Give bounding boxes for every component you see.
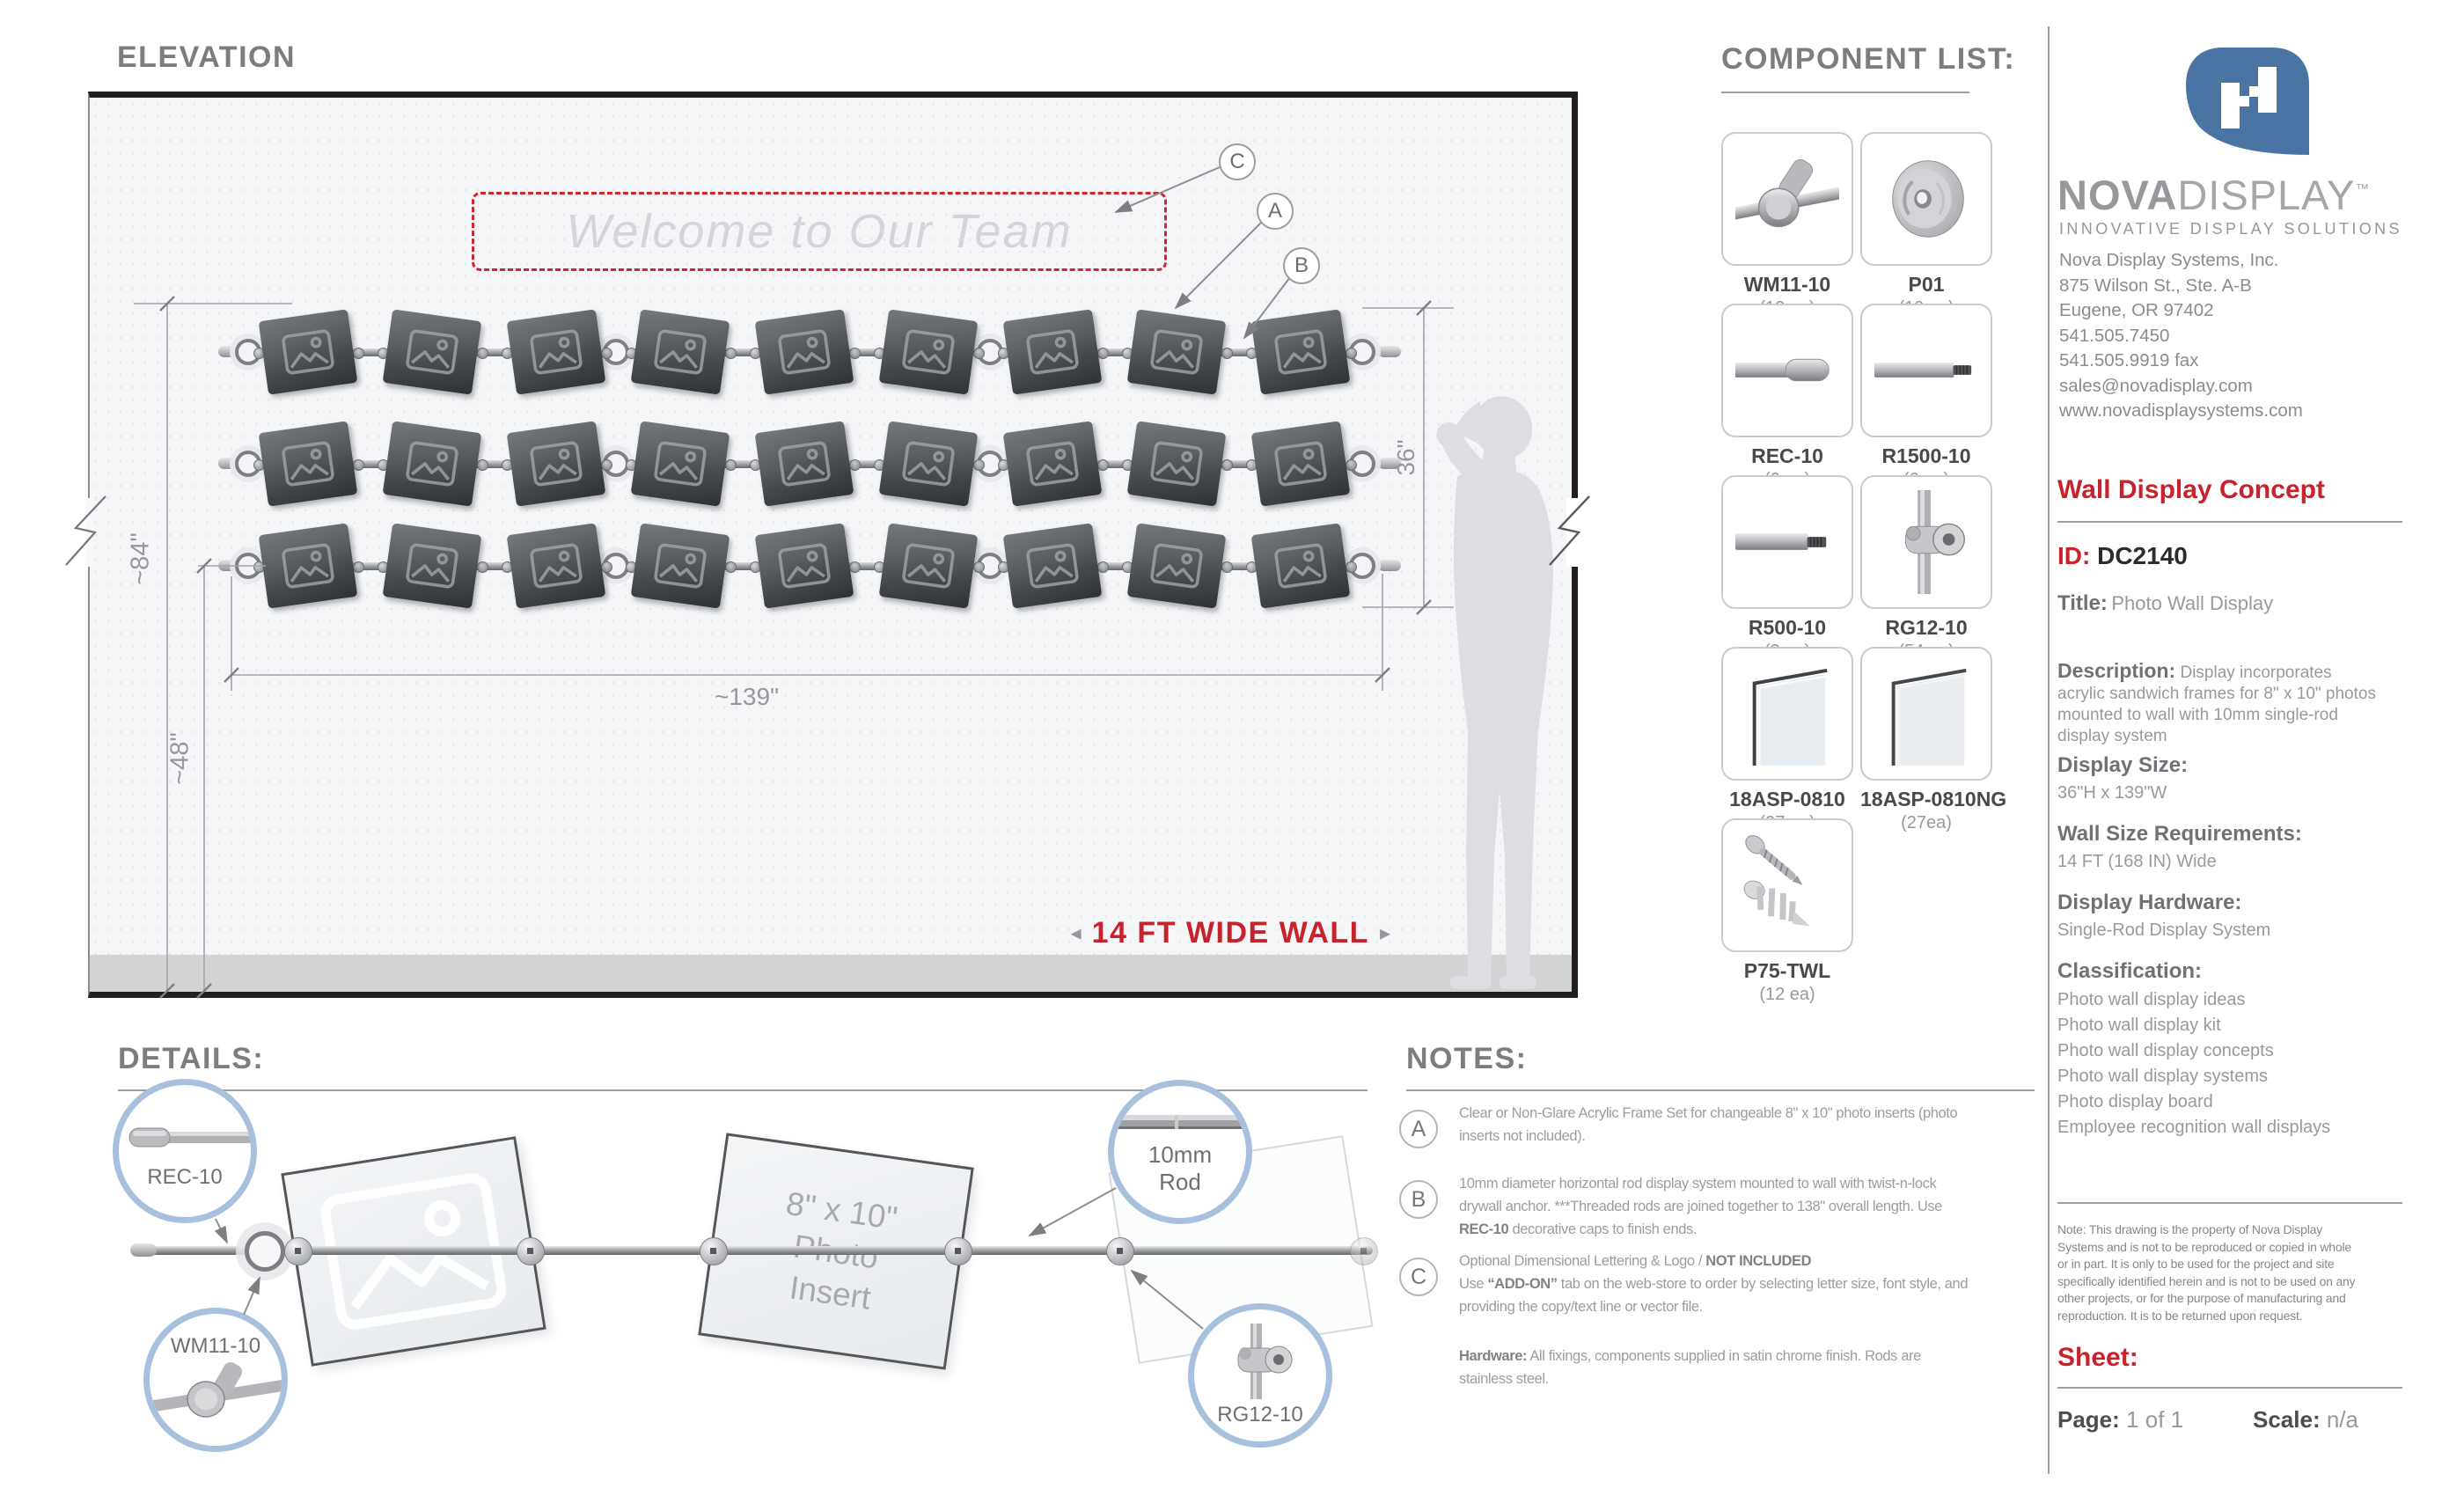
component-item: R1500-10(6 ea) xyxy=(1860,304,1992,490)
classification-item: Photo display board xyxy=(2057,1089,2330,1115)
note-text: Optional Dimensional Lettering & Logo / … xyxy=(1459,1250,2066,1318)
legal-divider xyxy=(2057,1202,2402,1204)
callout-rod-line2: Rod xyxy=(1159,1169,1201,1196)
callout-a-badge: A xyxy=(1257,193,1294,230)
page-row: Page: 1 of 1 xyxy=(2057,1406,2183,1434)
note-line: Clear or Non-Glare Acrylic Frame Set for… xyxy=(1459,1102,2066,1125)
hardware-value: Single-Rod Display System xyxy=(2057,920,2270,941)
page-value: 1 of 1 xyxy=(2126,1406,2183,1433)
classification-list: Photo wall display ideasPhoto wall displ… xyxy=(2057,987,2330,1140)
size-value: 36"H x 139"W xyxy=(2057,783,2167,803)
notes-title: NOTES: xyxy=(1406,1042,1527,1076)
hardware-note: Hardware: All fixings, components suppli… xyxy=(1459,1345,2022,1390)
acrylic-clear-icon xyxy=(1735,662,1839,766)
wall-size-label: Wall Size Requirements: xyxy=(2057,822,2302,847)
component-list-title: COMPONENT LIST: xyxy=(1721,42,2015,77)
callout-rg12-label: RG12-10 xyxy=(1217,1403,1302,1427)
end-cap-icon xyxy=(1735,319,1839,422)
address-line: 541.505.7450 xyxy=(2059,324,2404,349)
component-item: 18ASP-0810(27 ea) xyxy=(1721,647,1853,833)
note-line: stainless steel. xyxy=(1459,1368,2022,1390)
component-name: RG12-10 xyxy=(1860,616,1992,640)
component-thumb xyxy=(1860,475,1992,609)
dim-139: ~139" xyxy=(715,683,779,711)
address-line: www.novadisplaysystems.com xyxy=(2059,399,2404,424)
callout-rec10: REC-10 xyxy=(113,1079,257,1223)
component-qty: (27ea) xyxy=(1860,813,1992,833)
note-segment: “ADD-ON” xyxy=(1487,1276,1557,1292)
address-line: 875 Wilson St., Ste. A-B xyxy=(2059,274,2404,299)
nova-leaf-icon xyxy=(2186,48,2309,155)
callout-rod-line1: 10mm xyxy=(1148,1141,1212,1169)
component-thumb xyxy=(1721,304,1853,437)
description-label: Description: xyxy=(2057,659,2175,682)
wall-mount-icon xyxy=(1735,147,1839,251)
component-name: P01 xyxy=(1860,273,1992,297)
component-name: R500-10 xyxy=(1721,616,1853,640)
note-callout-a: A xyxy=(1399,1110,1438,1148)
id-label: ID: xyxy=(2057,542,2090,569)
lettering-placeholder-box: Welcome to Our Team xyxy=(472,192,1167,271)
callout-rg12: RG12-10 xyxy=(1188,1303,1332,1448)
wall-width-label: ◂ 14 FT WIDE WALL ▸ xyxy=(1021,916,1390,950)
spec-id-row: ID: DC2140 xyxy=(2057,542,2188,570)
right-arrow-icon: ▸ xyxy=(1380,920,1390,946)
component-thumb xyxy=(1860,647,1992,781)
note-text: 10mm diameter horizontal rod display sys… xyxy=(1459,1172,2066,1241)
note-segment: Clear or Non-Glare Acrylic Frame Set for… xyxy=(1459,1105,1957,1121)
scale-label: Scale: xyxy=(2253,1406,2321,1433)
classification-item: Photo wall display concepts xyxy=(2057,1038,2330,1064)
brand-wordmark: NOVADISPLAY™ xyxy=(2057,171,2370,219)
scale-value: n/a xyxy=(2327,1406,2358,1433)
component-name: R1500-10 xyxy=(1860,444,1992,468)
rod-long-icon xyxy=(1874,319,1978,422)
note-segment: decorative caps to finish ends. xyxy=(1508,1221,1697,1237)
notes-list: AClear or Non-Glare Acrylic Frame Set fo… xyxy=(1399,1102,2033,1454)
grip-ball xyxy=(284,1237,312,1265)
note-line: Use “ADD-ON” tab on the web-store to ord… xyxy=(1459,1272,2066,1295)
address-line: 541.505.9919 fax xyxy=(2059,348,2404,374)
rod-short-icon xyxy=(1735,490,1839,594)
rod-icon xyxy=(1113,1108,1247,1138)
brand-name-bold: NOVA xyxy=(2057,172,2177,218)
component-name: 18ASP-0810 xyxy=(1721,788,1853,811)
component-item: P75-TWL(12 ea) xyxy=(1721,818,1853,1005)
drawing-sheet: ELEVATION Welcome to Our Team xyxy=(0,0,2464,1496)
component-item: REC-10(6 ea) xyxy=(1721,304,1853,490)
note-segment: tab on the web-store to order by selecti… xyxy=(1558,1276,1968,1292)
brand-tagline: INNOVATIVE DISPLAY SOLUTIONS xyxy=(2059,220,2402,238)
page-label: Page: xyxy=(2057,1406,2120,1433)
end-cap-icon xyxy=(119,1112,251,1162)
note-segment: NOT INCLUDED xyxy=(1705,1253,1811,1269)
note-text: Clear or Non-Glare Acrylic Frame Set for… xyxy=(1459,1102,2066,1148)
elevation-title: ELEVATION xyxy=(117,40,296,75)
note-segment: inserts not included). xyxy=(1459,1128,1585,1144)
note-line: 10mm diameter horizontal rod display sys… xyxy=(1459,1172,2066,1195)
component-name: 18ASP-0810NG xyxy=(1860,788,1992,811)
note-segment: Hardware: xyxy=(1459,1348,1527,1364)
detail-wall-mount xyxy=(245,1231,285,1272)
address-line: Eugene, OR 97402 xyxy=(2059,298,2404,324)
note-segment: 10mm diameter horizontal rod display sys… xyxy=(1459,1176,1936,1192)
dim-48: ~48" xyxy=(166,732,195,785)
acrylic-nonglare-icon xyxy=(1874,662,1978,766)
wall-mount-icon xyxy=(150,1360,282,1426)
id-value: DC2140 xyxy=(2097,542,2188,569)
component-thumb xyxy=(1860,132,1992,266)
brand-name-light: DISPLAY xyxy=(2177,172,2355,218)
callout-10mm-rod: 10mm Rod xyxy=(1108,1080,1252,1224)
concept-underline xyxy=(2057,521,2402,523)
component-grid: WM11-10(12 ea) P01(12 ea) REC-10(6 ea) R… xyxy=(1721,132,2012,1065)
callout-wm11-label: WM11-10 xyxy=(171,1334,260,1359)
component-item: R500-10(3 ea) xyxy=(1721,475,1853,662)
note-line: drywall anchor. ***Threaded rods are joi… xyxy=(1459,1195,2066,1218)
hardware-label: Display Hardware: xyxy=(2057,891,2241,915)
note-segment: Use xyxy=(1459,1276,1487,1292)
note-callout-b: B xyxy=(1399,1180,1438,1219)
title-value: Photo Wall Display xyxy=(2111,592,2273,614)
note-segment: drywall anchor. ***Threaded rods are joi… xyxy=(1459,1199,1942,1214)
size-label: Display Size: xyxy=(2057,753,2188,778)
floor-band xyxy=(90,955,1572,992)
component-thumb xyxy=(1860,304,1992,437)
note-segment: providing the copy/text line or vector f… xyxy=(1459,1299,1703,1315)
note-line: inserts not included). xyxy=(1459,1125,2066,1148)
title-label: Title: xyxy=(2057,591,2108,615)
note-line: providing the copy/text line or vector f… xyxy=(1459,1295,2066,1318)
grip-ball xyxy=(517,1237,545,1265)
component-thumb xyxy=(1721,475,1853,609)
wall-width-text: 14 FT WIDE WALL xyxy=(1092,916,1369,950)
classification-item: Photo wall display kit xyxy=(2057,1013,2330,1038)
welcome-text: Welcome to Our Team xyxy=(566,204,1072,259)
classification-item: Photo wall display systems xyxy=(2057,1064,2330,1089)
component-name: P75-TWL xyxy=(1721,959,1853,983)
left-arrow-icon: ◂ xyxy=(1071,920,1082,946)
detail-end-cap xyxy=(130,1243,157,1257)
address-block: Nova Display Systems, Inc.875 Wilson St.… xyxy=(2059,248,2404,424)
note-line: Hardware: All fixings, components suppli… xyxy=(1459,1345,2022,1368)
note-callout-c: C xyxy=(1399,1258,1438,1296)
address-line: sales@novadisplay.com xyxy=(2059,374,2404,400)
callout-wm11: WM11-10 xyxy=(143,1308,288,1452)
grip-ball xyxy=(700,1237,728,1265)
component-thumb xyxy=(1721,647,1853,781)
note-line: REC-10 decorative caps to finish ends. xyxy=(1459,1218,2066,1241)
component-item: RG12-10(54 ea) xyxy=(1860,475,1992,662)
component-thumb xyxy=(1721,132,1853,266)
details-title: DETAILS: xyxy=(118,1042,264,1076)
component-item: P01(12 ea) xyxy=(1860,132,1992,319)
spec-description-row: Description: Display incorporates acryli… xyxy=(2057,639,2436,747)
component-qty: (12 ea) xyxy=(1721,985,1853,1005)
concept-heading: Wall Display Concept xyxy=(2057,475,2325,505)
dim-84: ~84" xyxy=(127,532,156,585)
scale-row: Scale: n/a xyxy=(2253,1406,2358,1434)
spec-title-row: Title: Photo Wall Display xyxy=(2057,591,2273,616)
wall-plate-icon xyxy=(1874,147,1978,251)
note-segment: stainless steel. xyxy=(1459,1371,1549,1387)
brand-logo xyxy=(2186,48,2309,159)
person-silhouette xyxy=(1419,378,1577,996)
notes-underline xyxy=(1406,1089,2035,1091)
rod-grip-icon xyxy=(1212,1324,1309,1399)
component-thumb xyxy=(1721,818,1853,952)
classification-item: Employee recognition wall displays xyxy=(2057,1115,2330,1140)
sheet-underline xyxy=(2057,1387,2402,1389)
component-name: WM11-10 xyxy=(1721,273,1853,297)
component-item: 18ASP-0810NG(27ea) xyxy=(1860,647,1992,833)
classification-item: Photo wall display ideas xyxy=(2057,987,2330,1013)
brand-trademark: ™ xyxy=(2355,182,2370,197)
sheet-label: Sheet: xyxy=(2057,1343,2138,1373)
note-segment: All fixings, components supplied in sati… xyxy=(1527,1348,1921,1364)
person-icon xyxy=(1419,378,1577,992)
note-line: Optional Dimensional Lettering & Logo / … xyxy=(1459,1250,2066,1272)
detail-rod xyxy=(143,1246,1373,1255)
component-name: REC-10 xyxy=(1721,444,1853,468)
note-segment: Optional Dimensional Lettering & Logo / xyxy=(1459,1253,1705,1269)
rod-grip-icon xyxy=(1874,490,1978,594)
classification-label: Classification: xyxy=(2057,959,2202,984)
note-segment: REC-10 xyxy=(1459,1221,1508,1237)
dim-36: 36" xyxy=(1392,439,1420,475)
wall-size-value: 14 FT (168 IN) Wide xyxy=(2057,852,2217,872)
grip-ball-faint xyxy=(1350,1237,1378,1265)
component-list-underline xyxy=(1721,92,1969,93)
anchor-screw-icon xyxy=(1735,833,1839,937)
address-line: Nova Display Systems, Inc. xyxy=(2059,248,2404,274)
callout-b-badge: B xyxy=(1283,247,1320,284)
callout-rec10-label: REC-10 xyxy=(147,1165,222,1190)
legal-note: Note: This drawing is the property of No… xyxy=(2057,1221,2409,1324)
callout-c-badge: C xyxy=(1219,143,1256,180)
component-item: WM11-10(12 ea) xyxy=(1721,132,1853,319)
grip-ball xyxy=(1106,1237,1134,1265)
grip-ball xyxy=(944,1237,972,1265)
